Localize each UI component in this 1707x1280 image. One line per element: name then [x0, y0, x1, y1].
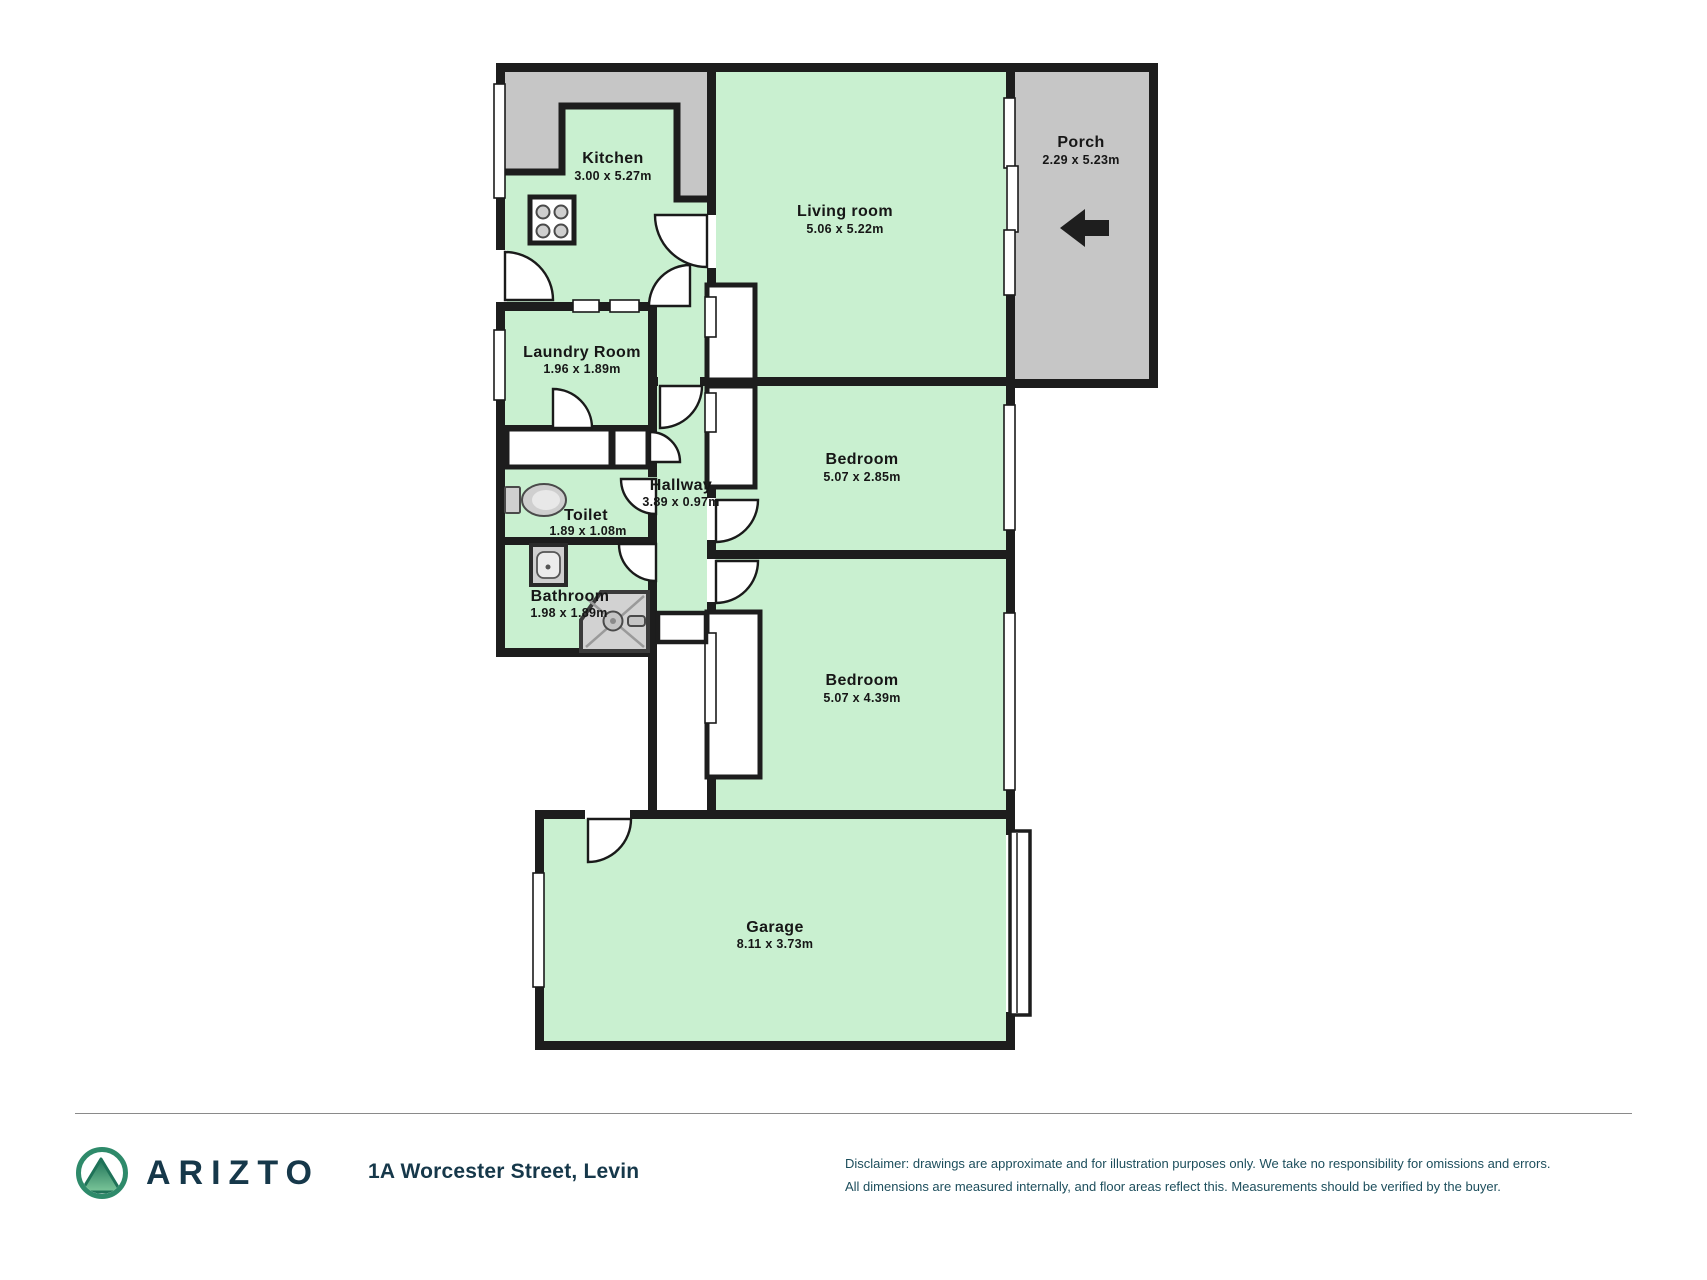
toilet-dims: 1.89 x 1.08m — [549, 524, 626, 538]
disclaimer-line-1: Disclaimer: drawings are approximate and… — [845, 1152, 1550, 1175]
toilet-icon — [505, 484, 566, 516]
page: { "plan": { "rooms": { "kitchen": {"name… — [0, 0, 1707, 1280]
hallway-dims: 3.89 x 0.97m — [642, 495, 719, 509]
hallway-end-door — [658, 613, 706, 642]
kitchen-label: Kitchen — [582, 150, 643, 167]
laundry-label: Laundry Room — [523, 344, 641, 361]
floor-plan: Kitchen 3.00 x 5.27m Living room 5.06 x … — [0, 0, 1707, 1113]
garage-label: Garage — [746, 919, 804, 936]
bathroom-dims: 1.98 x 1.89m — [530, 606, 607, 620]
laundry-top-window-2 — [610, 300, 639, 312]
porch-label: Porch — [1057, 134, 1104, 151]
brand-group: ARIZTO — [75, 1146, 320, 1200]
brand-wordmark: ARIZTO — [146, 1154, 320, 1193]
living-porch-slider-1 — [1004, 98, 1015, 168]
living-porch-slider-2 — [1007, 166, 1018, 232]
kitchen-dims: 3.00 x 5.27m — [574, 169, 651, 183]
bedroom1-closet-opening — [705, 393, 716, 432]
garage-window — [533, 873, 544, 987]
garage-dims: 8.11 x 3.73m — [737, 937, 814, 951]
laundry-top-window-1 — [573, 300, 599, 312]
property-address: 1A Worcester Street, Levin — [368, 1160, 639, 1184]
toilet-label: Toilet — [564, 507, 608, 524]
living-dims: 5.06 x 5.22m — [806, 222, 883, 236]
disclaimer: Disclaimer: drawings are approximate and… — [845, 1152, 1550, 1198]
bedroom2-closet-opening — [705, 633, 716, 723]
footer-divider — [75, 1113, 1632, 1114]
bedroom2-window — [1004, 613, 1015, 790]
living-porch-slider-3 — [1004, 230, 1015, 295]
laundry-window — [494, 330, 505, 400]
vestibule-closet-1 — [507, 429, 611, 467]
bedroom1-dims: 5.07 x 2.85m — [823, 470, 900, 484]
laundry-dims: 1.96 x 1.89m — [543, 362, 620, 376]
porch-dims: 2.29 x 5.23m — [1042, 153, 1119, 167]
bedroom1-label: Bedroom — [825, 451, 898, 468]
bedroom2-label: Bedroom — [825, 672, 898, 689]
disclaimer-line-2: All dimensions are measured internally, … — [845, 1175, 1550, 1198]
stove-icon — [530, 197, 574, 243]
arizto-logo-icon — [75, 1146, 129, 1200]
bedroom2-dims: 5.07 x 4.39m — [823, 691, 900, 705]
garage-roller-door — [1010, 831, 1030, 1015]
kitchen-window — [494, 84, 505, 198]
living-label: Living room — [797, 203, 893, 220]
sink-icon — [531, 545, 566, 585]
bathroom-label: Bathroom — [531, 588, 610, 605]
living-closet-opening — [705, 297, 716, 337]
bedroom1-window — [1004, 405, 1015, 530]
vestibule-closet-2 — [613, 429, 648, 467]
hallway-label: Hallway — [650, 477, 712, 494]
